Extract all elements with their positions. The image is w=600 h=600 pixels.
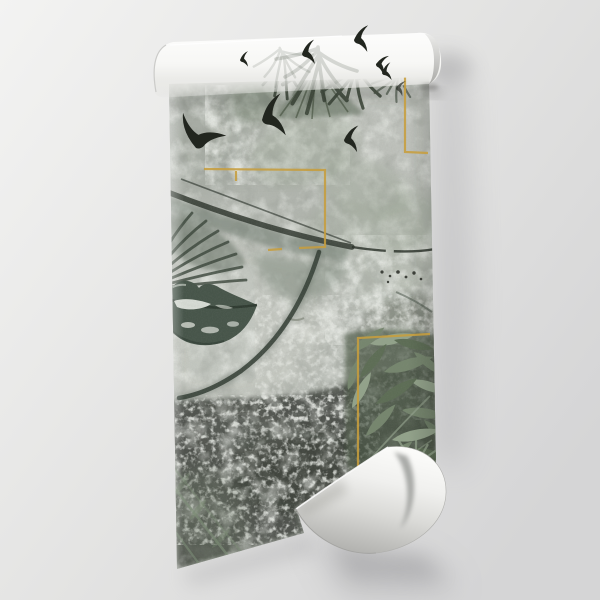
wallpaper-mockup-image[interactable]: [0, 0, 600, 600]
roll-cap-shadow: [423, 89, 443, 97]
sheet-right-shadow: [434, 54, 472, 468]
mockup-canvas: [0, 0, 600, 600]
gold-frame-center-dash: [268, 249, 282, 250]
